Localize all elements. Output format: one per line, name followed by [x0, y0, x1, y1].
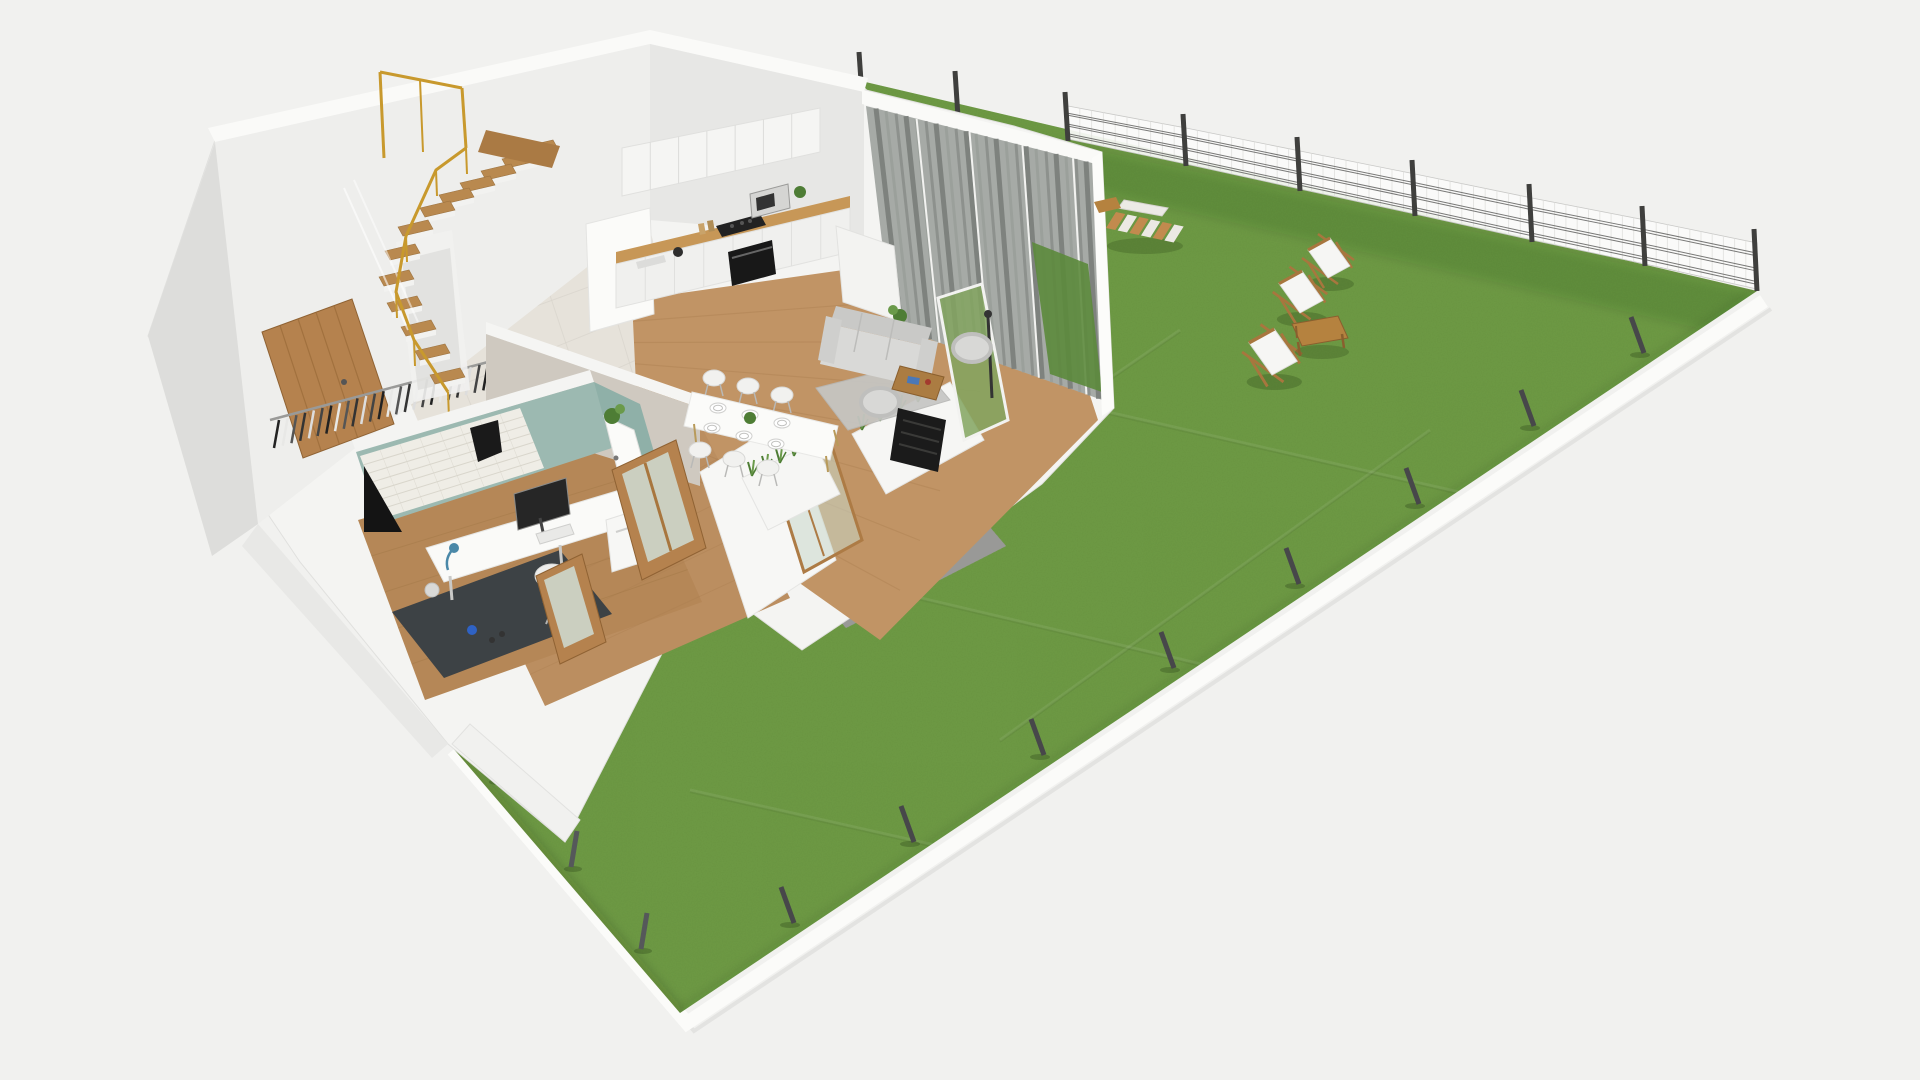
kettle: [673, 247, 683, 257]
fence-post: [955, 71, 958, 117]
dining-chair: [703, 370, 725, 386]
plate: [704, 423, 720, 433]
armchair-2: [861, 388, 899, 416]
dining-chair: [689, 442, 711, 458]
fence-post: [1642, 206, 1645, 266]
garden-coffee-table: [1292, 316, 1349, 359]
plate: [774, 418, 790, 428]
plate: [710, 403, 726, 413]
fence-post: [1297, 137, 1300, 191]
dining-chair: [723, 451, 745, 467]
door-handle: [341, 379, 347, 385]
armchair-1: [953, 334, 991, 362]
dining-chair: [771, 387, 793, 403]
floorplan-render: [0, 0, 1920, 1080]
dining-plant: [744, 412, 756, 424]
dining-chair: [757, 460, 779, 476]
kitchen-plant: [794, 186, 806, 198]
dining-chair: [737, 378, 759, 394]
plate: [736, 431, 752, 441]
fence-post: [1529, 184, 1532, 242]
fence-post: [1412, 160, 1415, 216]
fence-post: [1754, 229, 1757, 291]
fence-post: [1183, 114, 1186, 166]
dumbbell: [467, 625, 477, 635]
fence-post: [1065, 92, 1068, 141]
plate: [768, 439, 784, 449]
gym-ball: [425, 583, 439, 597]
